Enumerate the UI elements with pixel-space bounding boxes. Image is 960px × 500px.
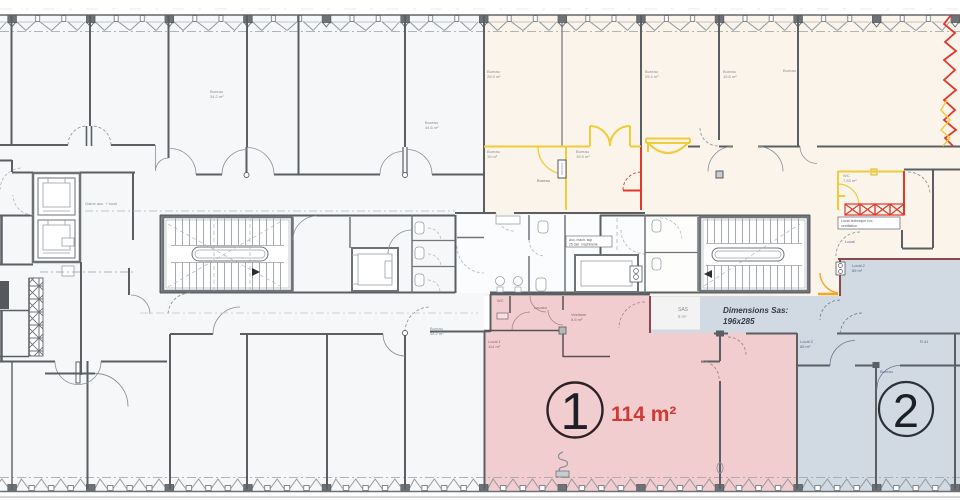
- svg-text:114 m²: 114 m²: [611, 403, 676, 426]
- svg-text:Bureau: Bureau: [880, 369, 893, 374]
- svg-text:Dimensions Sas:: Dimensions Sas:: [723, 306, 789, 315]
- svg-text:SAS: SAS: [678, 307, 689, 313]
- svg-text:R.41: R.41: [920, 339, 929, 344]
- svg-text:Bureau: Bureau: [783, 68, 796, 73]
- svg-text:Asc. mach. sup: Asc. mach. sup: [569, 238, 592, 242]
- svg-text:WC: WC: [497, 298, 504, 303]
- svg-text:Gaine asc. + local: Gaine asc. + local: [85, 201, 117, 206]
- svg-text:85 m²: 85 m²: [852, 268, 863, 273]
- svg-text:Bureau: Bureau: [537, 178, 550, 183]
- svg-text:5.6 m²: 5.6 m²: [571, 317, 583, 322]
- svg-text:196x285: 196x285: [723, 317, 755, 326]
- svg-text:15.8 m²: 15.8 m²: [723, 74, 737, 79]
- svg-text:ventilation: ventilation: [841, 224, 857, 228]
- svg-text:34.2 m²: 34.2 m²: [210, 94, 224, 99]
- svg-text:44.6 m²: 44.6 m²: [425, 125, 439, 130]
- svg-text:Local: Local: [845, 239, 855, 244]
- svg-text:28.9 m²: 28.9 m²: [487, 74, 501, 79]
- svg-text:114 m²: 114 m²: [488, 344, 501, 349]
- svg-text:7.63 m²: 7.63 m²: [843, 178, 857, 183]
- svg-text:Local technique cvc: Local technique cvc: [841, 219, 873, 223]
- svg-text:29.4 m²: 29.4 m²: [645, 74, 659, 79]
- svg-text:6 m²: 6 m²: [678, 314, 687, 319]
- svg-text:38.2 m²: 38.2 m²: [430, 331, 444, 336]
- svg-text:1: 1: [561, 383, 590, 441]
- svg-text:19 m²: 19 m²: [487, 154, 498, 159]
- svg-text:85 m²: 85 m²: [800, 344, 811, 349]
- svg-text:19.9 m²: 19.9 m²: [576, 154, 590, 159]
- svg-text:Lavabo: Lavabo: [534, 305, 548, 310]
- svg-text:25 cab. machinerie: 25 cab. machinerie: [569, 243, 598, 247]
- svg-text:2: 2: [893, 384, 919, 437]
